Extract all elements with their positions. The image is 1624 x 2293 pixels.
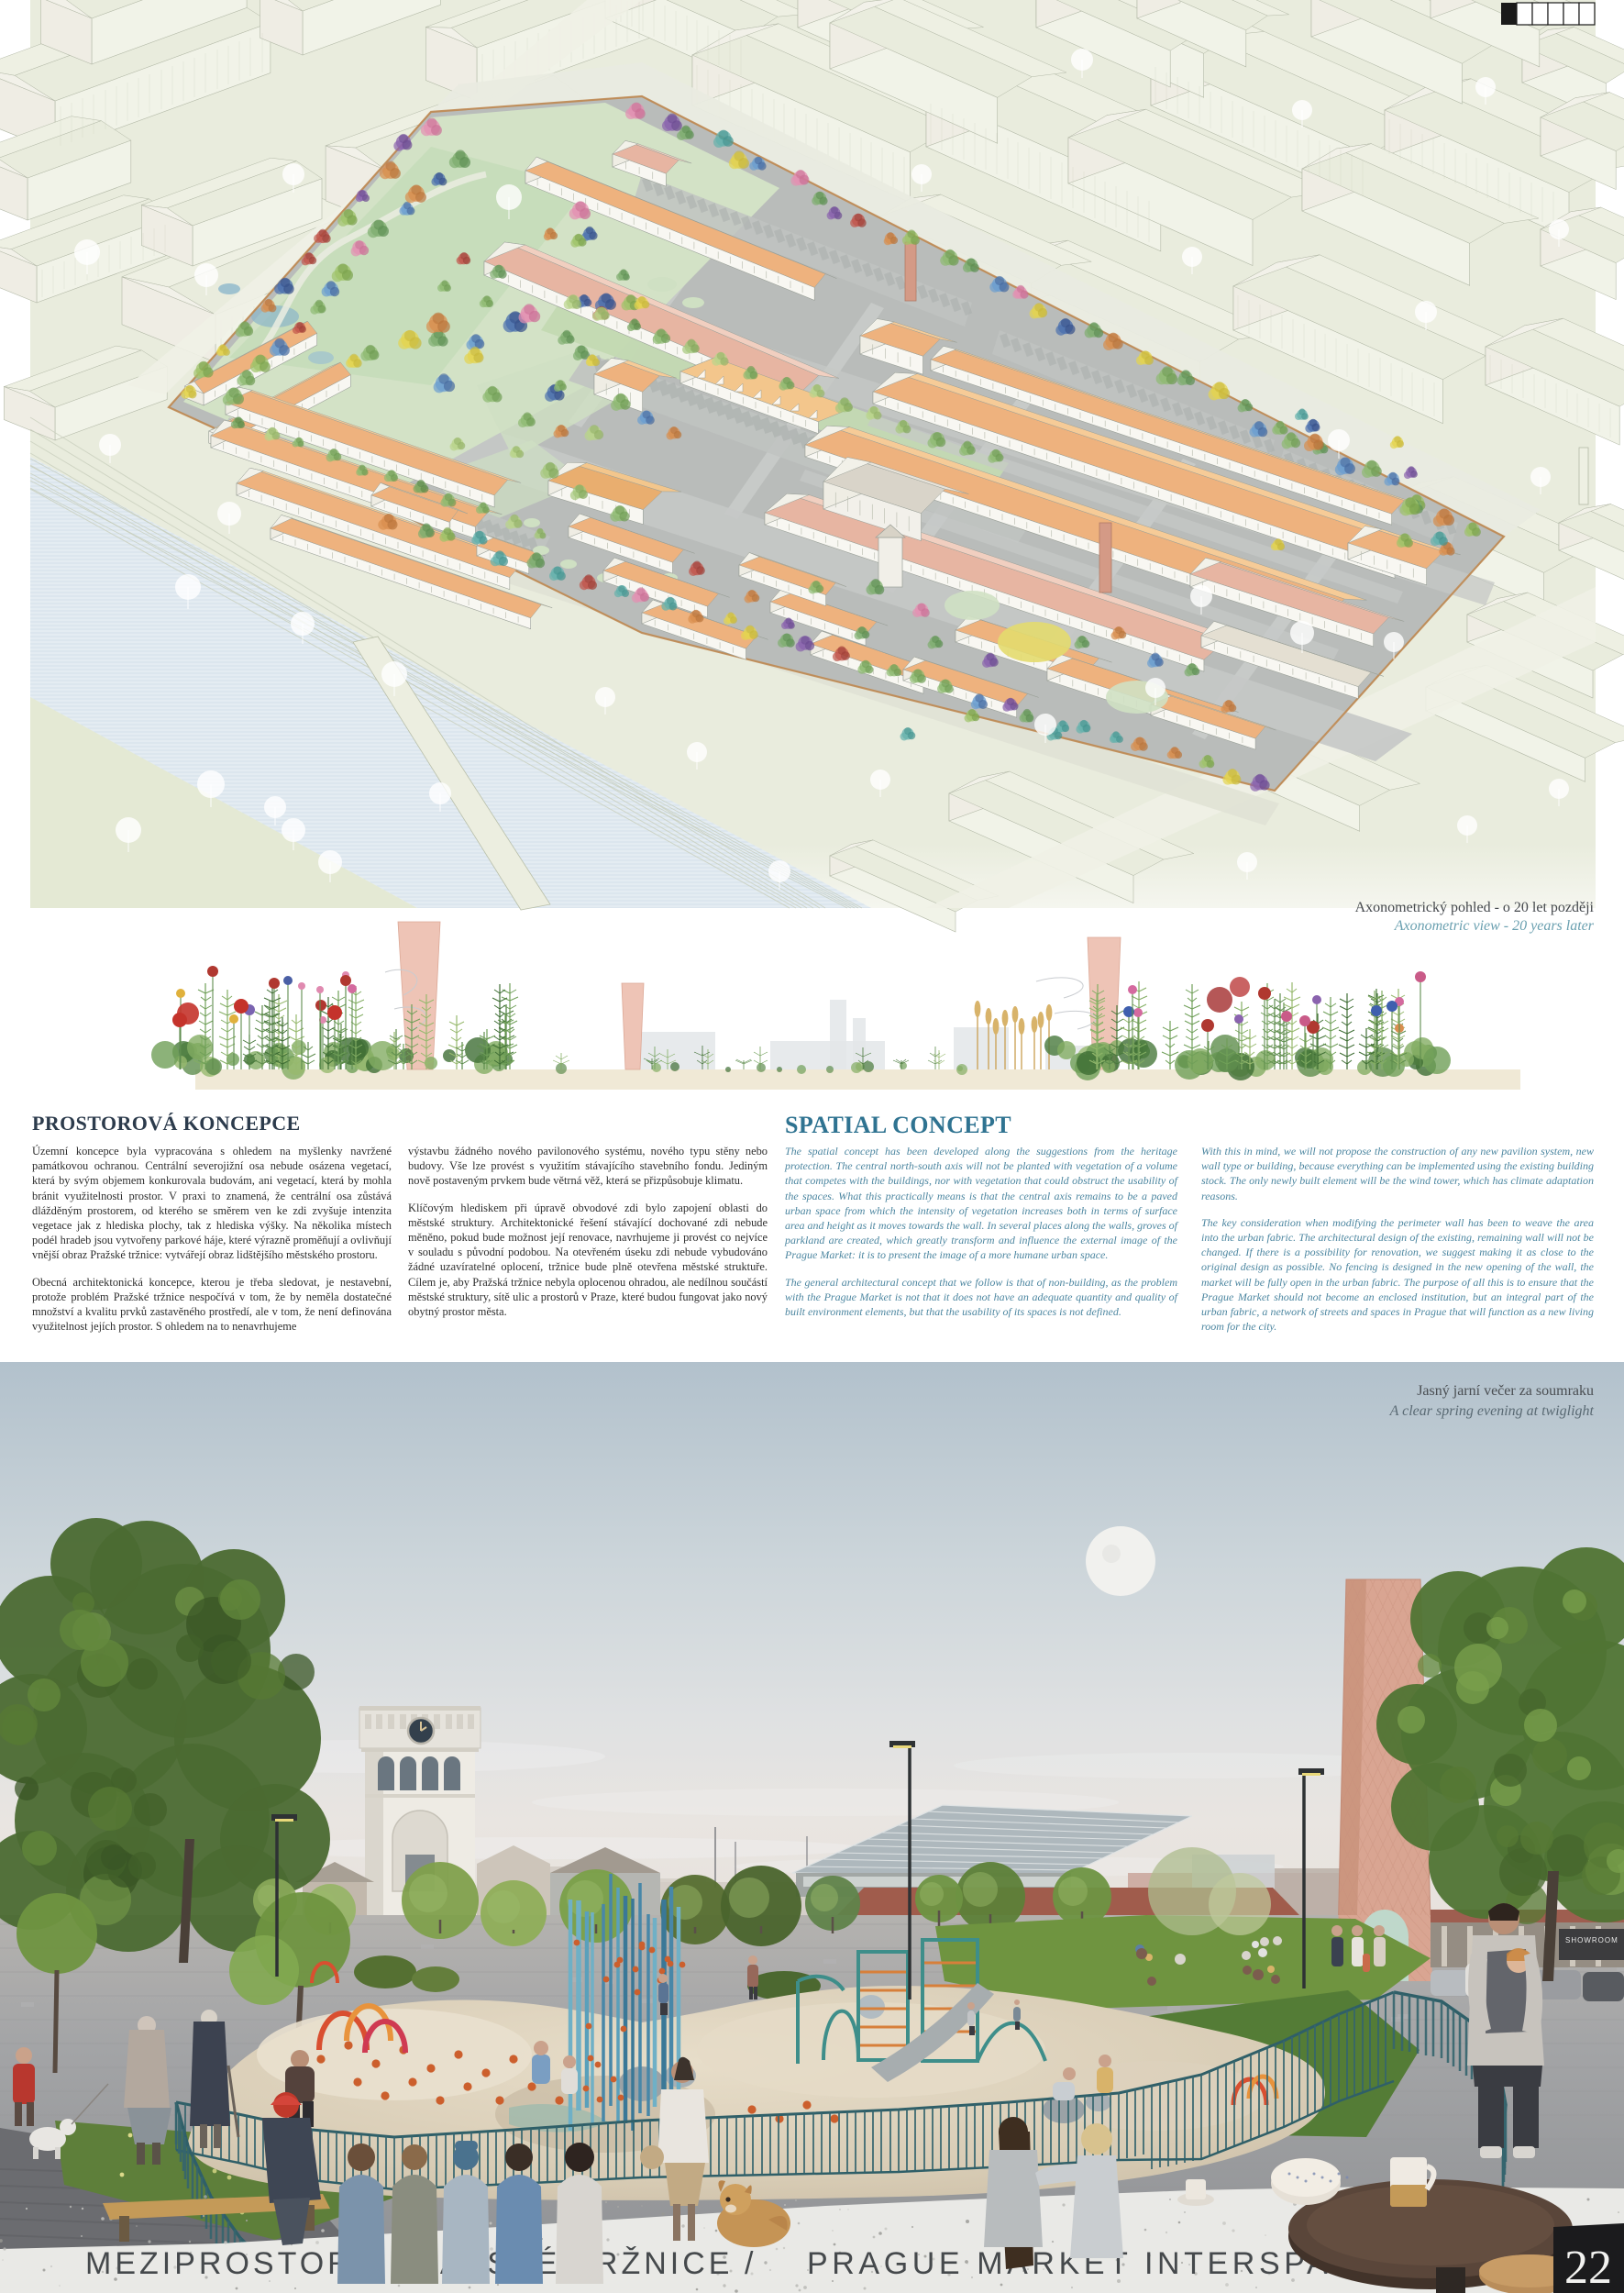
svg-text:/: / — [745, 2246, 754, 2281]
svg-text:22: 22 — [1564, 2242, 1612, 2293]
svg-text:A clear spring evening at twig: A clear spring evening at twiglight — [1389, 1403, 1595, 1419]
svg-text:SHOWROOM: SHOWROOM — [1565, 1936, 1618, 1944]
svg-text:Jasný jarní večer za soumraku: Jasný jarní večer za soumraku — [1417, 1383, 1594, 1399]
